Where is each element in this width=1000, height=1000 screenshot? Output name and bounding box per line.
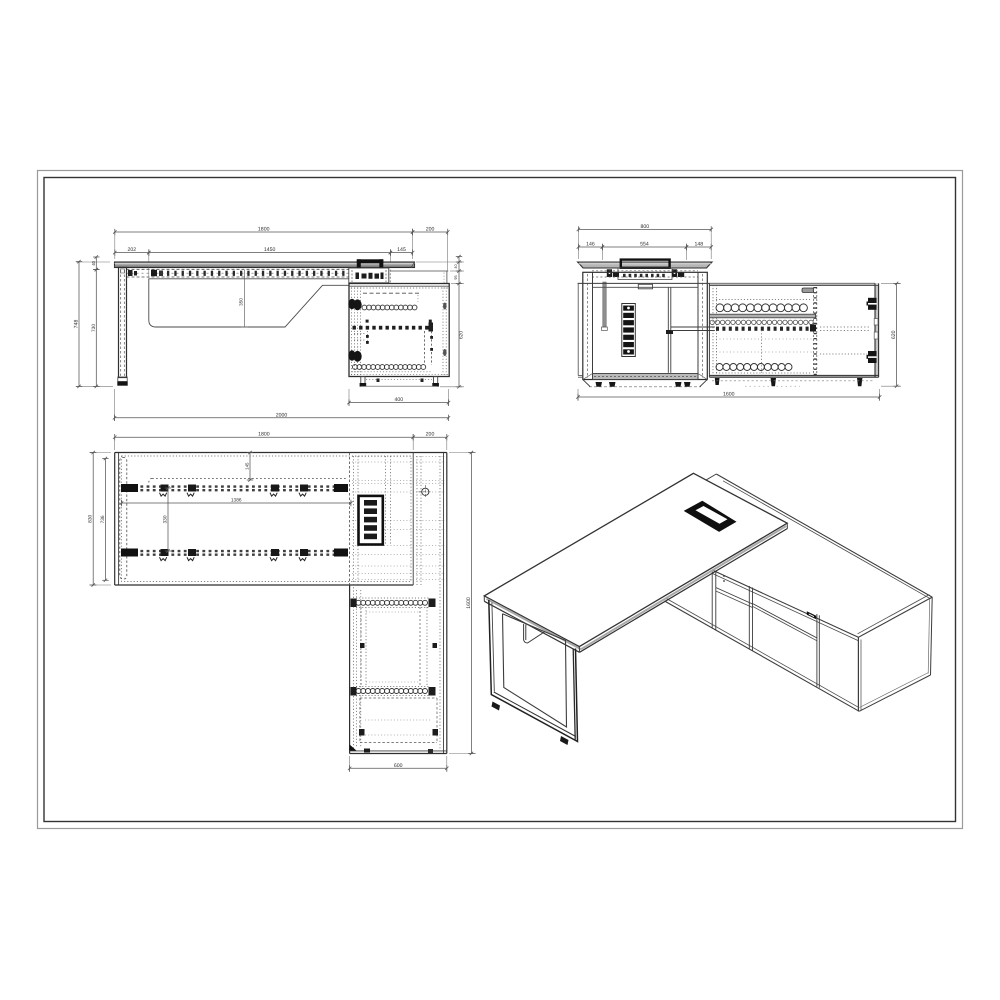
svg-text:1450: 1450 bbox=[264, 247, 276, 253]
svg-text:400: 400 bbox=[394, 397, 403, 403]
svg-text:1600: 1600 bbox=[466, 597, 472, 609]
svg-text:830: 830 bbox=[88, 514, 94, 522]
svg-text:330: 330 bbox=[163, 515, 169, 523]
svg-text:800: 800 bbox=[640, 224, 649, 230]
svg-text:202: 202 bbox=[127, 247, 136, 253]
svg-text:1386: 1386 bbox=[231, 498, 242, 504]
svg-text:40: 40 bbox=[91, 260, 96, 265]
svg-text:730: 730 bbox=[91, 324, 97, 332]
svg-text:146: 146 bbox=[586, 242, 595, 248]
svg-text:40: 40 bbox=[454, 264, 458, 268]
svg-text:2000: 2000 bbox=[276, 412, 288, 418]
svg-text:1800: 1800 bbox=[258, 227, 270, 233]
svg-text:620: 620 bbox=[459, 331, 465, 339]
svg-text:95: 95 bbox=[454, 275, 458, 279]
svg-text:620: 620 bbox=[891, 330, 897, 339]
svg-text:1800: 1800 bbox=[258, 432, 270, 438]
svg-text:554: 554 bbox=[640, 242, 649, 248]
svg-text:200: 200 bbox=[426, 227, 435, 233]
svg-text:1600: 1600 bbox=[723, 392, 735, 398]
svg-text:600: 600 bbox=[394, 763, 403, 769]
svg-text:148: 148 bbox=[694, 242, 703, 248]
svg-text:350: 350 bbox=[239, 298, 244, 306]
svg-text:748: 748 bbox=[74, 320, 80, 329]
svg-text:736: 736 bbox=[100, 515, 106, 523]
svg-text:145: 145 bbox=[397, 247, 406, 253]
svg-text:145: 145 bbox=[245, 462, 250, 470]
svg-text:200: 200 bbox=[426, 432, 435, 438]
